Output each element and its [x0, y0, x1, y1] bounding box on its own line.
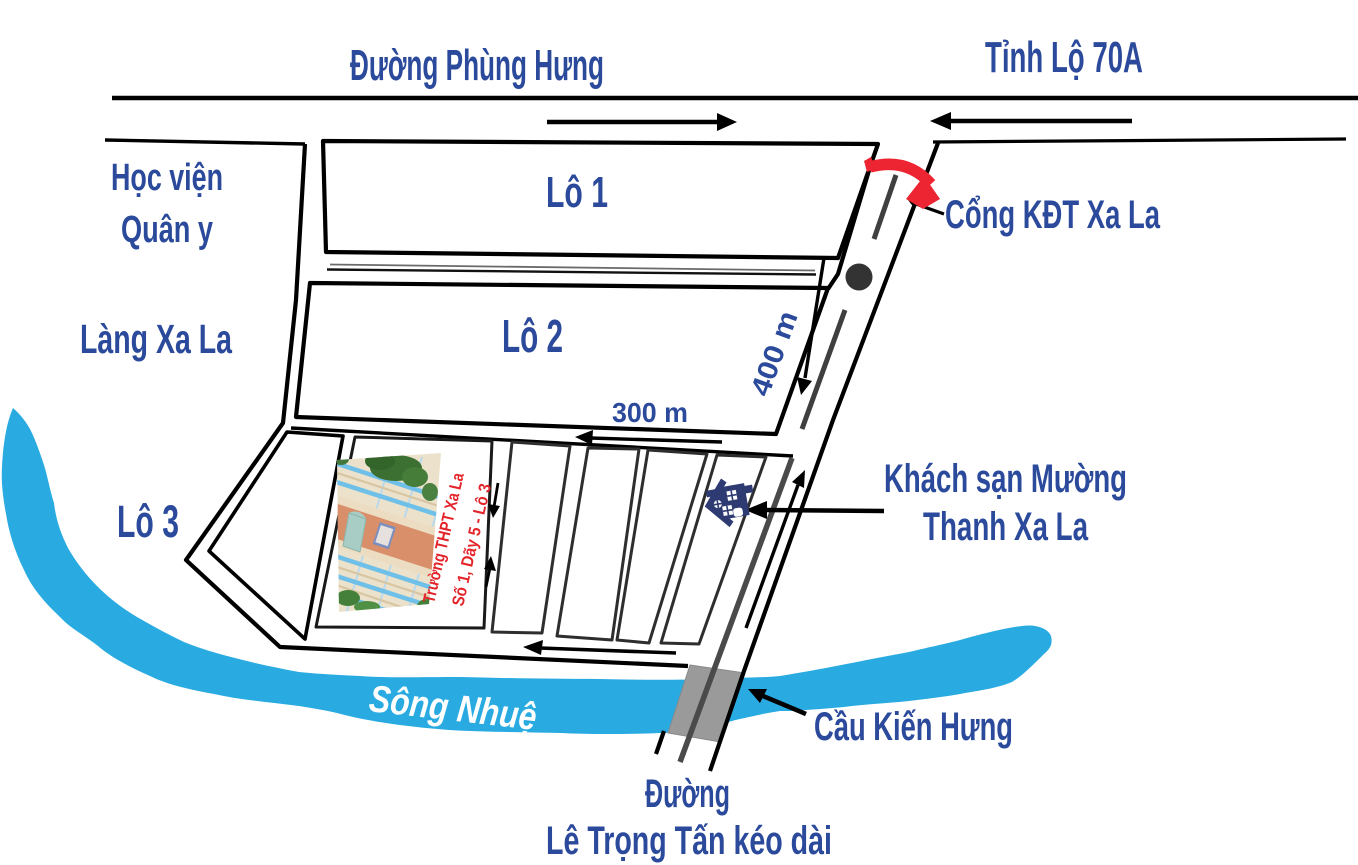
svg-text:Lô 1: Lô 1: [546, 168, 608, 217]
svg-text:Quân y: Quân y: [121, 209, 213, 251]
svg-text:300 m: 300 m: [612, 397, 688, 428]
svg-text:Lô 3: Lô 3: [117, 496, 179, 547]
svg-text:Thanh Xa La: Thanh Xa La: [923, 505, 1089, 549]
svg-text:Làng Xa La: Làng Xa La: [80, 316, 233, 362]
svg-text:Đường Phùng Hưng: Đường Phùng Hưng: [350, 41, 604, 90]
svg-text:Lô 2: Lô 2: [502, 310, 563, 362]
svg-text:Tỉnh Lộ 70A: Tỉnh Lộ 70A: [985, 33, 1143, 82]
svg-text:Lê Trọng Tấn kéo dài: Lê Trọng Tấn kéo dài: [546, 819, 832, 863]
svg-text:Khách sạn Mường: Khách sạn Mường: [884, 457, 1127, 501]
svg-text:Đường: Đường: [645, 772, 730, 816]
svg-text:Cầu Kiến Hưng: Cầu Kiến Hưng: [814, 705, 1013, 749]
svg-text:Học viện: Học viện: [111, 157, 223, 199]
svg-text:Cổng KĐT Xa La: Cổng KĐT Xa La: [945, 193, 1161, 237]
